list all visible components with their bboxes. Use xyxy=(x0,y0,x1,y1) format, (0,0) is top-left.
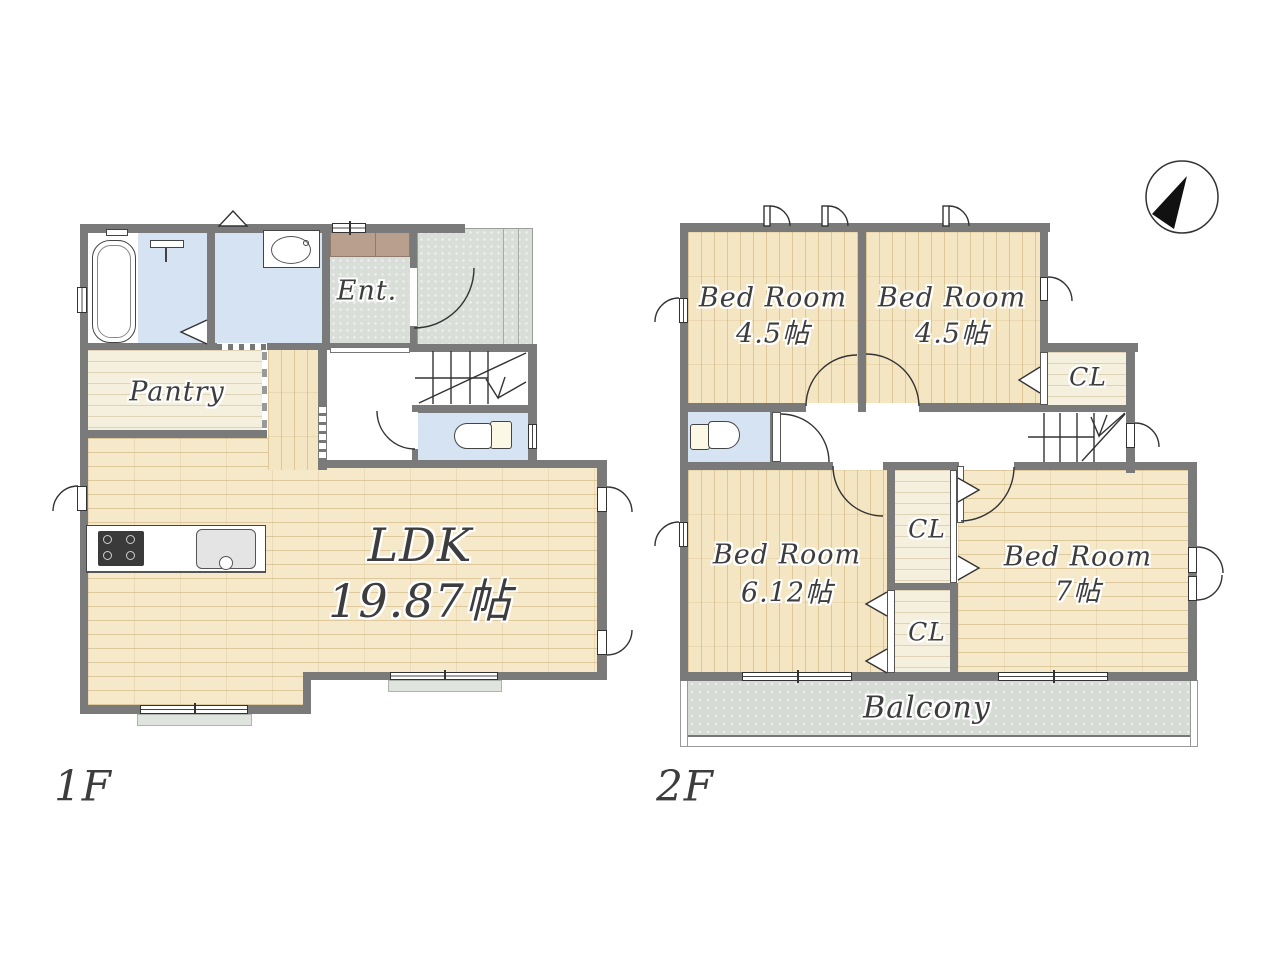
wall xyxy=(680,403,1048,412)
wall xyxy=(887,470,895,590)
door-leaf-toilet-2f xyxy=(772,412,781,462)
floor-plan-2f xyxy=(0,0,640,960)
compass-north-label: N xyxy=(1177,162,1195,184)
balcony-rail xyxy=(688,735,1190,747)
room-label-bedroom-se-area: 7帖 xyxy=(1055,570,1101,609)
balcony-post xyxy=(1190,680,1198,747)
room-label-closet-mid-lower: CL xyxy=(908,618,946,647)
hallway-2f xyxy=(777,412,1028,462)
closet-bifold-door xyxy=(887,590,895,673)
window-arc xyxy=(1197,575,1222,600)
window-arc xyxy=(1048,277,1072,301)
window-casement-leaf xyxy=(1188,547,1197,573)
room-label-bedroom-nw: Bed Room xyxy=(699,283,847,314)
window-sliding xyxy=(998,672,1108,681)
window-casement-leaf xyxy=(679,522,688,547)
door-leaf-bedroom-se xyxy=(957,466,964,523)
wall xyxy=(1040,343,1138,352)
window-arc xyxy=(1197,547,1223,573)
wall xyxy=(680,223,1050,232)
door-opening-bedroom-se xyxy=(959,462,1014,470)
window-casement-leaf xyxy=(679,298,688,323)
balcony-post xyxy=(680,680,688,747)
door-opening-bedroom-sw xyxy=(833,462,883,470)
door-opening-bedroom-nw xyxy=(806,403,858,412)
room-label-bedroom-ne-area: 4.5帖 xyxy=(915,312,989,351)
window-sliding xyxy=(742,672,852,681)
wall xyxy=(858,232,866,403)
window-casement-leaf xyxy=(1126,423,1135,448)
window-arc xyxy=(1135,423,1159,447)
door-opening-bedroom-ne xyxy=(866,403,919,412)
toilet-bowl-2f xyxy=(708,421,740,449)
wall xyxy=(895,583,950,590)
toilet-tank-2f xyxy=(690,424,710,450)
wall xyxy=(1126,343,1135,473)
room-label-closet-north: CL xyxy=(1069,363,1107,392)
room-label-balcony: Balcony xyxy=(863,691,991,726)
room-label-closet-mid-upper: CL xyxy=(908,515,946,544)
room-label-bedroom-sw-area: 6.12帖 xyxy=(741,571,833,610)
room-label-bedroom-sw: Bed Room xyxy=(713,540,861,571)
window-arc xyxy=(655,522,679,546)
room-label-bedroom-ne: Bed Room xyxy=(878,283,1026,314)
room-label-bedroom-se: Bed Room xyxy=(1004,542,1152,573)
stairs-floor-2f xyxy=(1028,412,1126,463)
closet-bifold-door xyxy=(1040,352,1048,405)
wall xyxy=(680,462,1197,470)
floor-label-2f: 2F xyxy=(656,762,714,811)
room-label-bedroom-nw-area: 4.5帖 xyxy=(736,312,810,351)
wall xyxy=(680,223,688,681)
window-casement-leaf xyxy=(1188,576,1197,601)
window-arc xyxy=(655,298,679,322)
wall xyxy=(1040,405,1126,412)
window-casement-leaf xyxy=(1040,277,1048,301)
wall xyxy=(950,583,958,673)
closet-bifold-door xyxy=(950,470,957,583)
floor-plan-canvas: Ent. Pantry LDK 19.87帖 1F xyxy=(0,0,1280,960)
